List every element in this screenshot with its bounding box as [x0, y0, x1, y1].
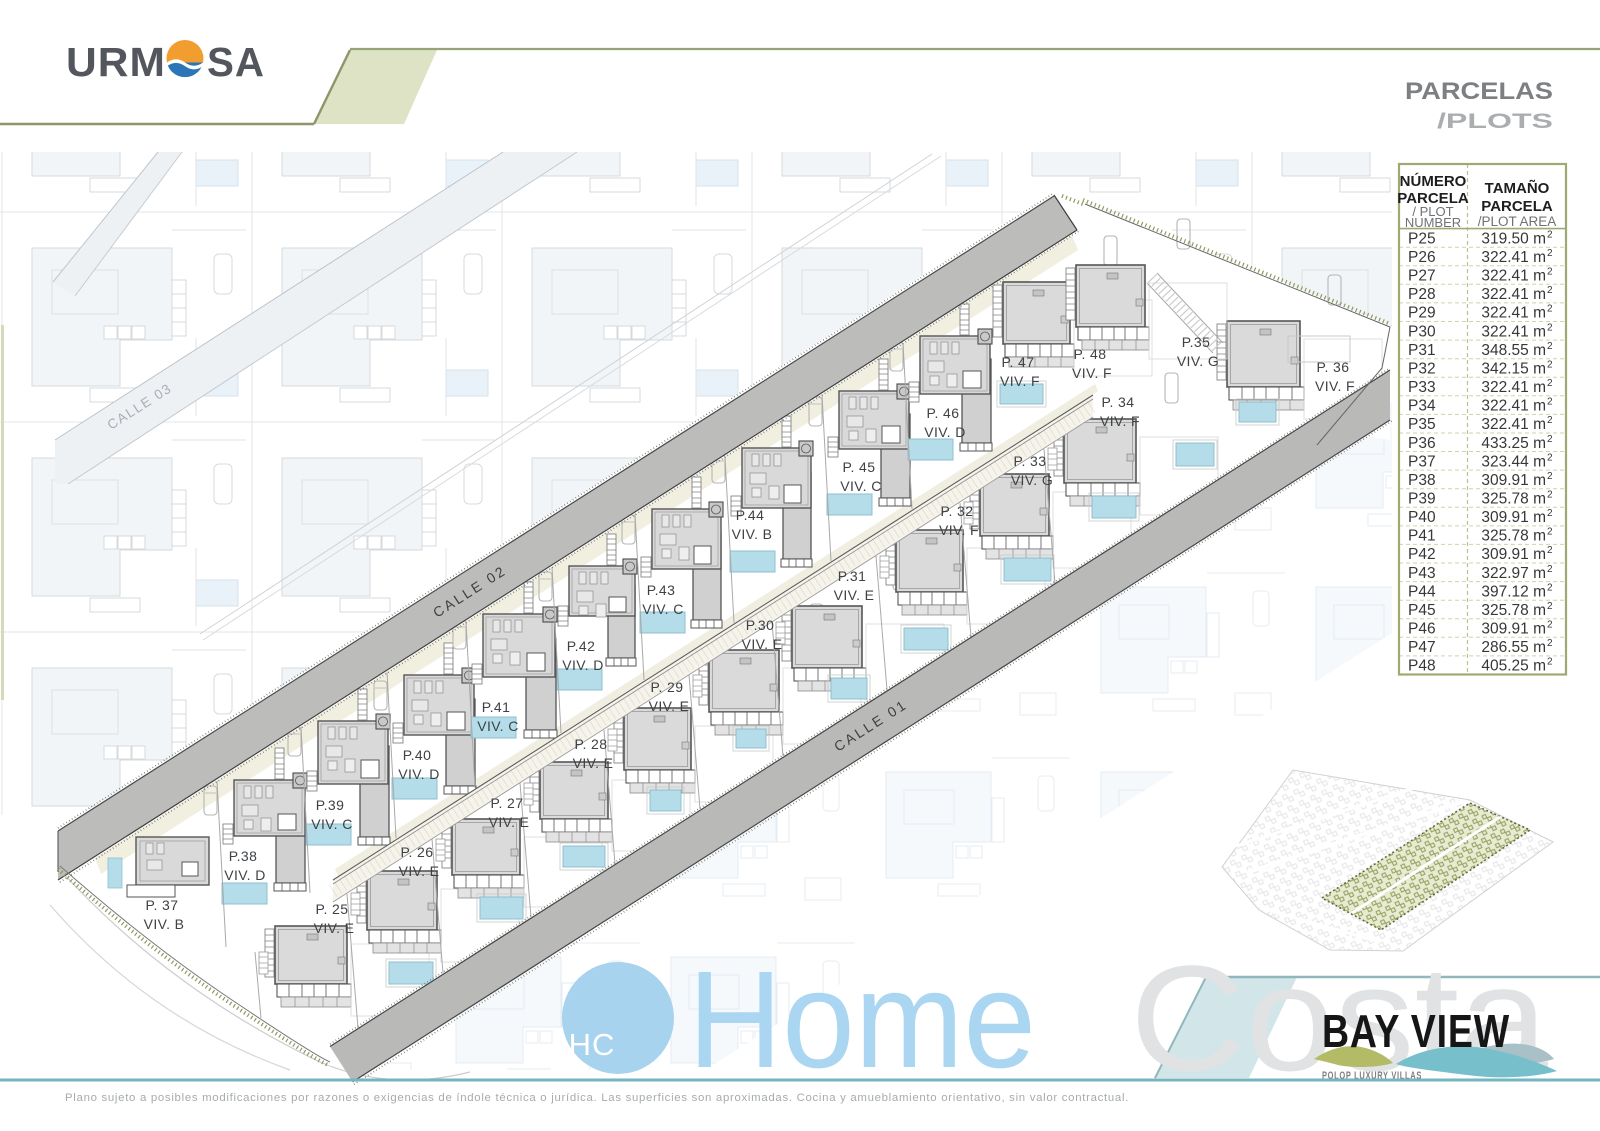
- svg-text:348.55 m: 348.55 m: [1481, 342, 1546, 359]
- svg-text:VIV. F: VIV. F: [939, 522, 979, 538]
- svg-text:VIV. C: VIV. C: [311, 816, 353, 832]
- svg-text:P42: P42: [1408, 546, 1436, 563]
- svg-text:2: 2: [1547, 378, 1553, 389]
- svg-text:2: 2: [1547, 601, 1553, 612]
- svg-text:VIV. F: VIV. F: [1000, 373, 1040, 389]
- svg-text:VIV. B: VIV. B: [144, 916, 185, 932]
- svg-text:309.91 m: 309.91 m: [1481, 546, 1546, 563]
- svg-text:P.35: P.35: [1182, 334, 1211, 350]
- svg-text:322.41 m: 322.41 m: [1481, 268, 1546, 285]
- svg-text:VIV. E: VIV. E: [649, 698, 690, 714]
- svg-text:2: 2: [1547, 527, 1553, 538]
- svg-text:P.41: P.41: [482, 699, 511, 715]
- svg-text:2: 2: [1547, 434, 1553, 445]
- svg-text:P. 45: P. 45: [843, 459, 876, 475]
- svg-text:VIV. C: VIV. C: [642, 601, 684, 617]
- svg-text:2: 2: [1547, 229, 1553, 240]
- svg-text:2: 2: [1547, 490, 1553, 501]
- svg-text:2: 2: [1547, 285, 1553, 296]
- svg-text:322.41 m: 322.41 m: [1481, 379, 1546, 396]
- svg-text:VIV. E: VIV. E: [742, 636, 783, 652]
- svg-text:2: 2: [1547, 545, 1553, 556]
- svg-text:309.91 m: 309.91 m: [1481, 621, 1546, 638]
- svg-text:322.97 m: 322.97 m: [1481, 565, 1546, 582]
- svg-text:P.31: P.31: [838, 568, 867, 584]
- svg-text:325.78 m: 325.78 m: [1481, 528, 1546, 545]
- svg-text:P. 36: P. 36: [1317, 359, 1350, 375]
- svg-text:P43: P43: [1408, 565, 1436, 582]
- svg-text:VIV. C: VIV. C: [477, 718, 519, 734]
- svg-text:P. 46: P. 46: [927, 405, 960, 421]
- svg-text:P33: P33: [1408, 379, 1436, 396]
- svg-text:P32: P32: [1408, 361, 1436, 378]
- svg-text:Home: Home: [688, 943, 1036, 1097]
- svg-text:P.30: P.30: [746, 617, 775, 633]
- svg-text:VIV. D: VIV. D: [562, 657, 604, 673]
- svg-text:2: 2: [1547, 508, 1553, 519]
- svg-text:VIV. D: VIV. D: [398, 766, 440, 782]
- svg-text:VIV. F: VIV. F: [1072, 365, 1112, 381]
- svg-text:322.41 m: 322.41 m: [1481, 305, 1546, 322]
- svg-text:P38: P38: [1408, 472, 1436, 489]
- svg-text:323.44 m: 323.44 m: [1481, 453, 1546, 470]
- svg-text:P30: P30: [1408, 323, 1436, 340]
- svg-text:286.55 m: 286.55 m: [1481, 639, 1546, 656]
- svg-text:URM: URM: [66, 39, 166, 85]
- svg-text:SA: SA: [207, 39, 265, 85]
- svg-text:VIV. E: VIV. E: [489, 814, 530, 830]
- svg-text:2: 2: [1547, 397, 1553, 408]
- svg-text:322.41 m: 322.41 m: [1481, 416, 1546, 433]
- svg-text:2: 2: [1547, 452, 1553, 463]
- svg-text:319.50 m: 319.50 m: [1481, 230, 1546, 247]
- svg-text:Plano sujeto a posibles modifi: Plano sujeto a posibles modificaciones p…: [65, 1092, 1129, 1104]
- svg-text:P31: P31: [1408, 342, 1436, 359]
- svg-text:VIV. C: VIV. C: [840, 478, 882, 494]
- svg-text:2: 2: [1547, 304, 1553, 315]
- svg-text:309.91 m: 309.91 m: [1481, 472, 1546, 489]
- svg-text:NÚMERO: NÚMERO: [1400, 172, 1467, 190]
- svg-text:P. 28: P. 28: [575, 736, 608, 752]
- svg-text:P.38: P.38: [229, 848, 258, 864]
- svg-text:P48: P48: [1408, 658, 1436, 675]
- svg-text:2: 2: [1547, 322, 1553, 333]
- svg-text:HC: HC: [569, 1027, 616, 1062]
- svg-text:P. 32: P. 32: [941, 503, 974, 519]
- svg-text:2: 2: [1547, 638, 1553, 649]
- svg-text:P. 48: P. 48: [1074, 346, 1107, 362]
- svg-text:VIV. G: VIV. G: [1011, 472, 1053, 488]
- svg-text:2: 2: [1547, 360, 1553, 371]
- svg-text:309.91 m: 309.91 m: [1481, 509, 1546, 526]
- svg-text:P. 37: P. 37: [146, 897, 179, 913]
- svg-text:P.44: P.44: [736, 507, 765, 523]
- svg-text:VIV. E: VIV. E: [834, 587, 875, 603]
- svg-text:2: 2: [1547, 657, 1553, 668]
- svg-text:VIV. B: VIV. B: [732, 526, 773, 542]
- svg-text:P28: P28: [1408, 286, 1436, 303]
- svg-text:PARCELAS: PARCELAS: [1405, 78, 1553, 105]
- svg-text:P.43: P.43: [647, 582, 676, 598]
- svg-text:VIV. F: VIV. F: [1100, 413, 1140, 429]
- svg-text:P44: P44: [1408, 583, 1436, 600]
- svg-text:VIV. E: VIV. E: [573, 755, 614, 771]
- svg-text:PARCELA: PARCELA: [1481, 198, 1553, 215]
- svg-text:P. 25: P. 25: [316, 901, 349, 917]
- svg-text:322.41 m: 322.41 m: [1481, 323, 1546, 340]
- svg-text:342.15 m: 342.15 m: [1481, 361, 1546, 378]
- svg-text:P45: P45: [1408, 602, 1436, 619]
- svg-text:325.78 m: 325.78 m: [1481, 491, 1546, 508]
- svg-text:2: 2: [1547, 341, 1553, 352]
- svg-text:433.25 m: 433.25 m: [1481, 435, 1546, 452]
- svg-text:P27: P27: [1408, 268, 1436, 285]
- svg-text:325.78 m: 325.78 m: [1481, 602, 1546, 619]
- svg-text:P46: P46: [1408, 621, 1436, 638]
- svg-text:2: 2: [1547, 471, 1553, 482]
- svg-text:2: 2: [1547, 248, 1553, 259]
- svg-text:P34: P34: [1408, 398, 1436, 415]
- svg-text:P.40: P.40: [403, 747, 432, 763]
- svg-text:P47: P47: [1408, 639, 1436, 656]
- svg-text:405.25 m: 405.25 m: [1481, 658, 1546, 675]
- svg-text:2: 2: [1547, 267, 1553, 278]
- svg-text:322.41 m: 322.41 m: [1481, 398, 1546, 415]
- svg-text:2: 2: [1547, 415, 1553, 426]
- svg-text:P. 33: P. 33: [1014, 453, 1047, 469]
- svg-text:P41: P41: [1408, 528, 1436, 545]
- svg-text:VIV. F: VIV. F: [1315, 378, 1355, 394]
- svg-text:VIV. D: VIV. D: [224, 867, 266, 883]
- svg-text:P. 26: P. 26: [401, 844, 434, 860]
- svg-text:/PLOTS: /PLOTS: [1437, 109, 1553, 133]
- svg-text:322.41 m: 322.41 m: [1481, 249, 1546, 266]
- svg-text:P.39: P.39: [316, 797, 345, 813]
- svg-text:P26: P26: [1408, 249, 1436, 266]
- svg-text:NUMBER: NUMBER: [1405, 215, 1461, 230]
- svg-text:P39: P39: [1408, 491, 1436, 508]
- svg-text:322.41 m: 322.41 m: [1481, 286, 1546, 303]
- svg-text:P37: P37: [1408, 453, 1436, 470]
- svg-text:397.12 m: 397.12 m: [1481, 583, 1546, 600]
- svg-text:VIV. D: VIV. D: [924, 424, 966, 440]
- svg-text:VIV. G: VIV. G: [1177, 353, 1219, 369]
- svg-text:2: 2: [1547, 582, 1553, 593]
- svg-text:P29: P29: [1408, 305, 1436, 322]
- svg-text:P35: P35: [1408, 416, 1436, 433]
- svg-text:P36: P36: [1408, 435, 1436, 452]
- svg-text:VIV. E: VIV. E: [314, 920, 355, 936]
- svg-text:P25: P25: [1408, 230, 1436, 247]
- svg-text:BAY VIEW: BAY VIEW: [1322, 1005, 1510, 1057]
- svg-text:TAMAÑO: TAMAÑO: [1485, 179, 1550, 197]
- svg-text:P. 34: P. 34: [1102, 394, 1135, 410]
- svg-text:P40: P40: [1408, 509, 1436, 526]
- svg-text:P. 29: P. 29: [651, 679, 684, 695]
- svg-text:2: 2: [1547, 564, 1553, 575]
- svg-text:VIV. E: VIV. E: [399, 863, 440, 879]
- svg-text:2: 2: [1547, 620, 1553, 631]
- svg-text:P. 47: P. 47: [1002, 354, 1035, 370]
- svg-text:P. 27: P. 27: [491, 795, 524, 811]
- svg-text:P.42: P.42: [567, 638, 596, 654]
- svg-text:/PLOT AREA: /PLOT AREA: [1478, 214, 1557, 229]
